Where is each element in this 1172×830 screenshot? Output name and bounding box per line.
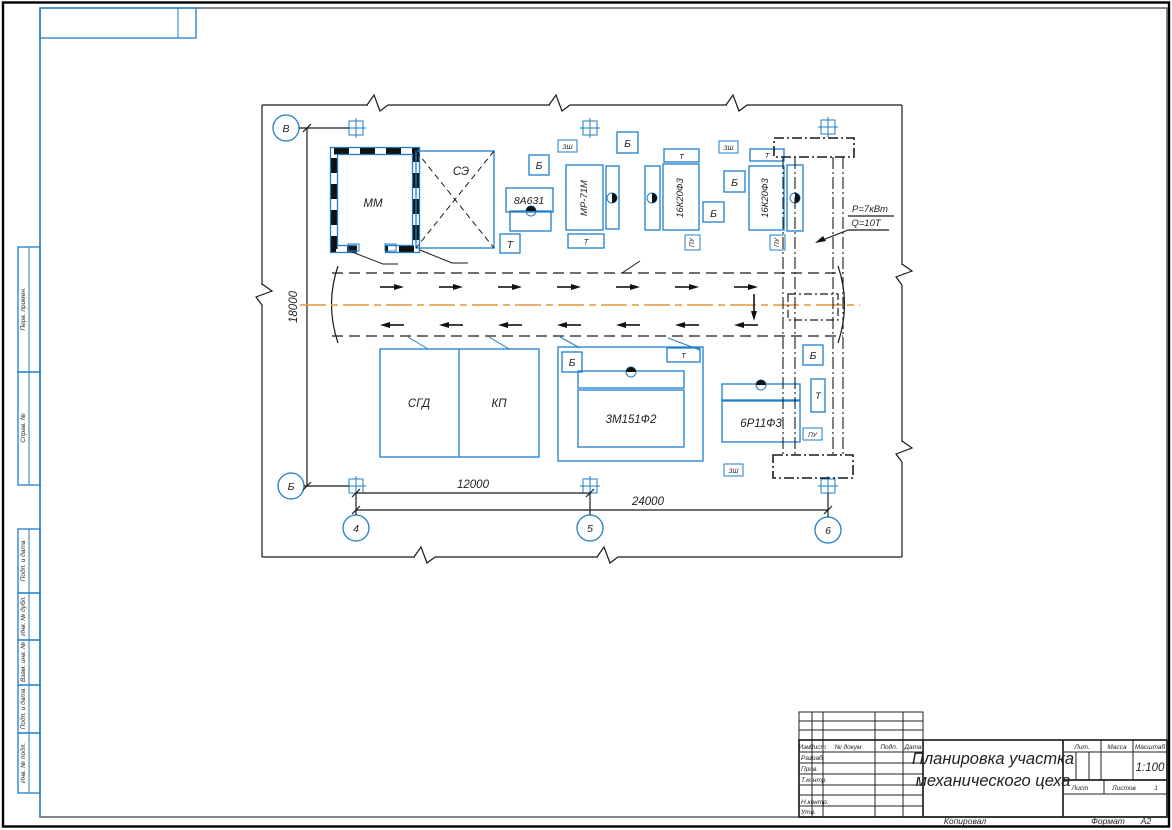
grid-axes: В Б 4 5 6 <box>273 115 841 543</box>
drawing-title: Планировка участка механического цеха <box>912 750 1074 790</box>
sheets-label: Листов <box>1111 785 1136 792</box>
tag-zsh: ЗШ <box>719 141 738 153</box>
title-block-right: Лит. Масса Масштаб 1:100 Лист Листов 1 <box>1071 743 1166 792</box>
side-field-label: Инв. № подл. <box>19 743 27 784</box>
title-line-1: Планировка участка <box>912 750 1074 768</box>
machine-centering-mr71m: МР-71М <box>566 165 619 230</box>
format-value: А2 <box>1140 816 1152 826</box>
axis-label-6: 6 <box>825 525 831 537</box>
roller-conveyor <box>300 266 860 350</box>
crane-bridge-bottom <box>773 455 853 478</box>
row-prov: Пров. <box>801 766 818 773</box>
conveyor-connectors <box>408 337 700 350</box>
machine-saw-8a631: 8А631 <box>506 188 553 231</box>
crane-capacity: Q=10Т <box>851 218 882 229</box>
transfer-arrow-down <box>751 294 757 321</box>
svg-text:Т: Т <box>584 237 590 246</box>
svg-text:Б: Б <box>731 177 738 189</box>
sheets-value: 1 <box>1154 785 1158 792</box>
machine-centering-label: МР-71М <box>579 180 590 216</box>
machine-grinder-3m151f2: 3М151Ф2 <box>558 347 703 461</box>
title-line-2: механического цеха <box>916 772 1071 790</box>
tag-t: Т <box>500 234 520 253</box>
dim-height: 18000 <box>288 290 300 323</box>
room-mm-label: ММ <box>363 198 383 210</box>
axis-label-b: Б <box>288 481 295 493</box>
side-field-podp-data-1: Подп. и дата <box>18 529 40 593</box>
row-tkontr: Т.контр. <box>801 777 827 784</box>
room-sgd-kp: СГД КП <box>380 349 539 457</box>
room-se-label: СЭ <box>453 166 469 178</box>
page-border <box>3 3 1169 827</box>
tag-t: Т <box>664 149 699 162</box>
machine-lathe-label: 16К20Ф3 <box>760 178 771 218</box>
sheet-label: Лист <box>1071 785 1089 792</box>
machine-mill-6r11f3: 6Р11Ф3 <box>722 380 800 442</box>
tag-pu: ПУ <box>685 235 700 250</box>
tag-t: Т <box>568 234 604 248</box>
tag-zsh: ЗШ <box>558 140 577 152</box>
svg-text:ЗШ: ЗШ <box>729 468 739 475</box>
inner-frame <box>40 8 1167 817</box>
svg-text:Т: Т <box>679 152 685 161</box>
side-field-podp-data-2: Подп. и дата <box>18 685 40 733</box>
room-kp-label: КП <box>491 398 507 410</box>
side-field-vzam-inv: Взам. инв. № <box>18 640 40 685</box>
format-label: Формат <box>1091 816 1125 826</box>
revision-table <box>799 712 923 740</box>
side-field-label: Перв. примен. <box>20 287 27 330</box>
tag-t: Т <box>667 348 700 362</box>
svg-text:Б: Б <box>710 208 717 220</box>
side-field-inv-podl: Инв. № подл. <box>18 733 40 793</box>
svg-text:Т: Т <box>507 239 515 251</box>
dimensions: 18000 12000 24000 <box>288 124 832 517</box>
row-nkontr: Н.контр. <box>801 799 829 806</box>
tag-pu: ПУ <box>803 428 822 440</box>
machine-mill-label: 6Р11Ф3 <box>740 418 782 430</box>
leader-arrowhead <box>815 236 826 243</box>
col-podp: Подп. <box>880 743 897 751</box>
corner-stamp <box>40 8 196 38</box>
side-fields: Перв. примен. Справ. № Подп. и дата Инв.… <box>18 247 40 793</box>
side-field-label: Подп. и дата <box>19 688 27 729</box>
axis-label-4: 4 <box>353 523 359 535</box>
svg-text:ПУ: ПУ <box>689 237 696 247</box>
svg-text:ПУ: ПУ <box>774 237 781 247</box>
tag-zsh: ЗШ <box>724 464 743 476</box>
machine-saw-label: 8А631 <box>514 195 544 207</box>
lit-label: Лит. <box>1073 744 1089 751</box>
dim-total: 24000 <box>631 496 665 508</box>
tag-b: Б <box>529 155 549 175</box>
svg-text:ЗШ: ЗШ <box>563 144 573 151</box>
side-field-sprav-no: Справ. № <box>18 372 40 485</box>
row-utv: Утв. <box>800 809 816 816</box>
tag-b: Б <box>703 202 724 222</box>
axis-label-v: В <box>282 123 289 135</box>
side-field-inv-dubl: Инв. № дубл. <box>18 593 40 640</box>
room-se: СЭ <box>416 151 494 248</box>
col-list: Лист <box>808 744 826 751</box>
machine-lathe-label: 16К20Ф3 <box>675 178 686 218</box>
axis-label-5: 5 <box>587 523 593 535</box>
crane-note: Р=7кВт Q=10Т <box>815 204 894 243</box>
title-block-header-cols: Изм. Лист № докум. Подп. Дата <box>799 743 922 751</box>
title-block: Изм. Лист № докум. Подп. Дата Разраб. Пр… <box>799 712 1167 817</box>
svg-text:ЗШ: ЗШ <box>724 145 734 152</box>
col-dokum: № докум. <box>835 743 864 751</box>
scale-label: Масштаб <box>1135 743 1166 751</box>
tag-t: Т <box>811 379 825 412</box>
crane-bridge-top <box>774 138 854 157</box>
crane: Р=7кВт Q=10Т <box>773 138 894 478</box>
machine-lathe-16k20f3-1: 16К20Ф3 <box>645 164 699 230</box>
svg-text:Б: Б <box>624 138 631 150</box>
dim-bay: 12000 <box>457 479 490 491</box>
machine-grinder-label: 3М151Ф2 <box>606 414 657 426</box>
door-swings <box>352 250 640 273</box>
svg-text:ПУ: ПУ <box>808 432 818 439</box>
tag-t: Т <box>750 149 784 161</box>
svg-text:Т: Т <box>815 391 822 402</box>
tag-b: Б <box>617 132 638 153</box>
row-razrab: Разраб. <box>801 754 825 762</box>
side-field-label: Подп. и дата <box>19 540 27 581</box>
scale-value: 1:100 <box>1136 762 1165 774</box>
svg-text:Б: Б <box>810 350 817 362</box>
room-mm: ММ <box>331 148 420 256</box>
tag-b: Б <box>724 171 745 192</box>
copied-label: Копировал <box>944 816 986 826</box>
tag-b: Б <box>562 352 582 372</box>
sheet-frame <box>3 3 1169 827</box>
side-field-label: Инв. № дубл. <box>19 596 27 636</box>
crane-power: Р=7кВт <box>852 204 888 215</box>
svg-text:Б: Б <box>536 160 543 172</box>
room-sgd-label: СГД <box>408 398 430 410</box>
drawing-sheet: Перв. примен. Справ. № Подп. и дата Инв.… <box>0 0 1172 830</box>
flow-arrows-left <box>380 322 758 328</box>
side-field-label: Справ. № <box>20 413 27 443</box>
svg-text:Т: Т <box>681 351 687 360</box>
svg-text:Б: Б <box>569 357 576 369</box>
flow-arrows-right <box>380 284 758 290</box>
side-field-perv-primen: Перв. примен. <box>18 247 40 372</box>
side-field-label: Взам. инв. № <box>20 642 27 682</box>
svg-text:Т: Т <box>765 151 771 160</box>
tag-b: Б <box>803 345 823 365</box>
mass-label: Масса <box>1107 744 1127 751</box>
